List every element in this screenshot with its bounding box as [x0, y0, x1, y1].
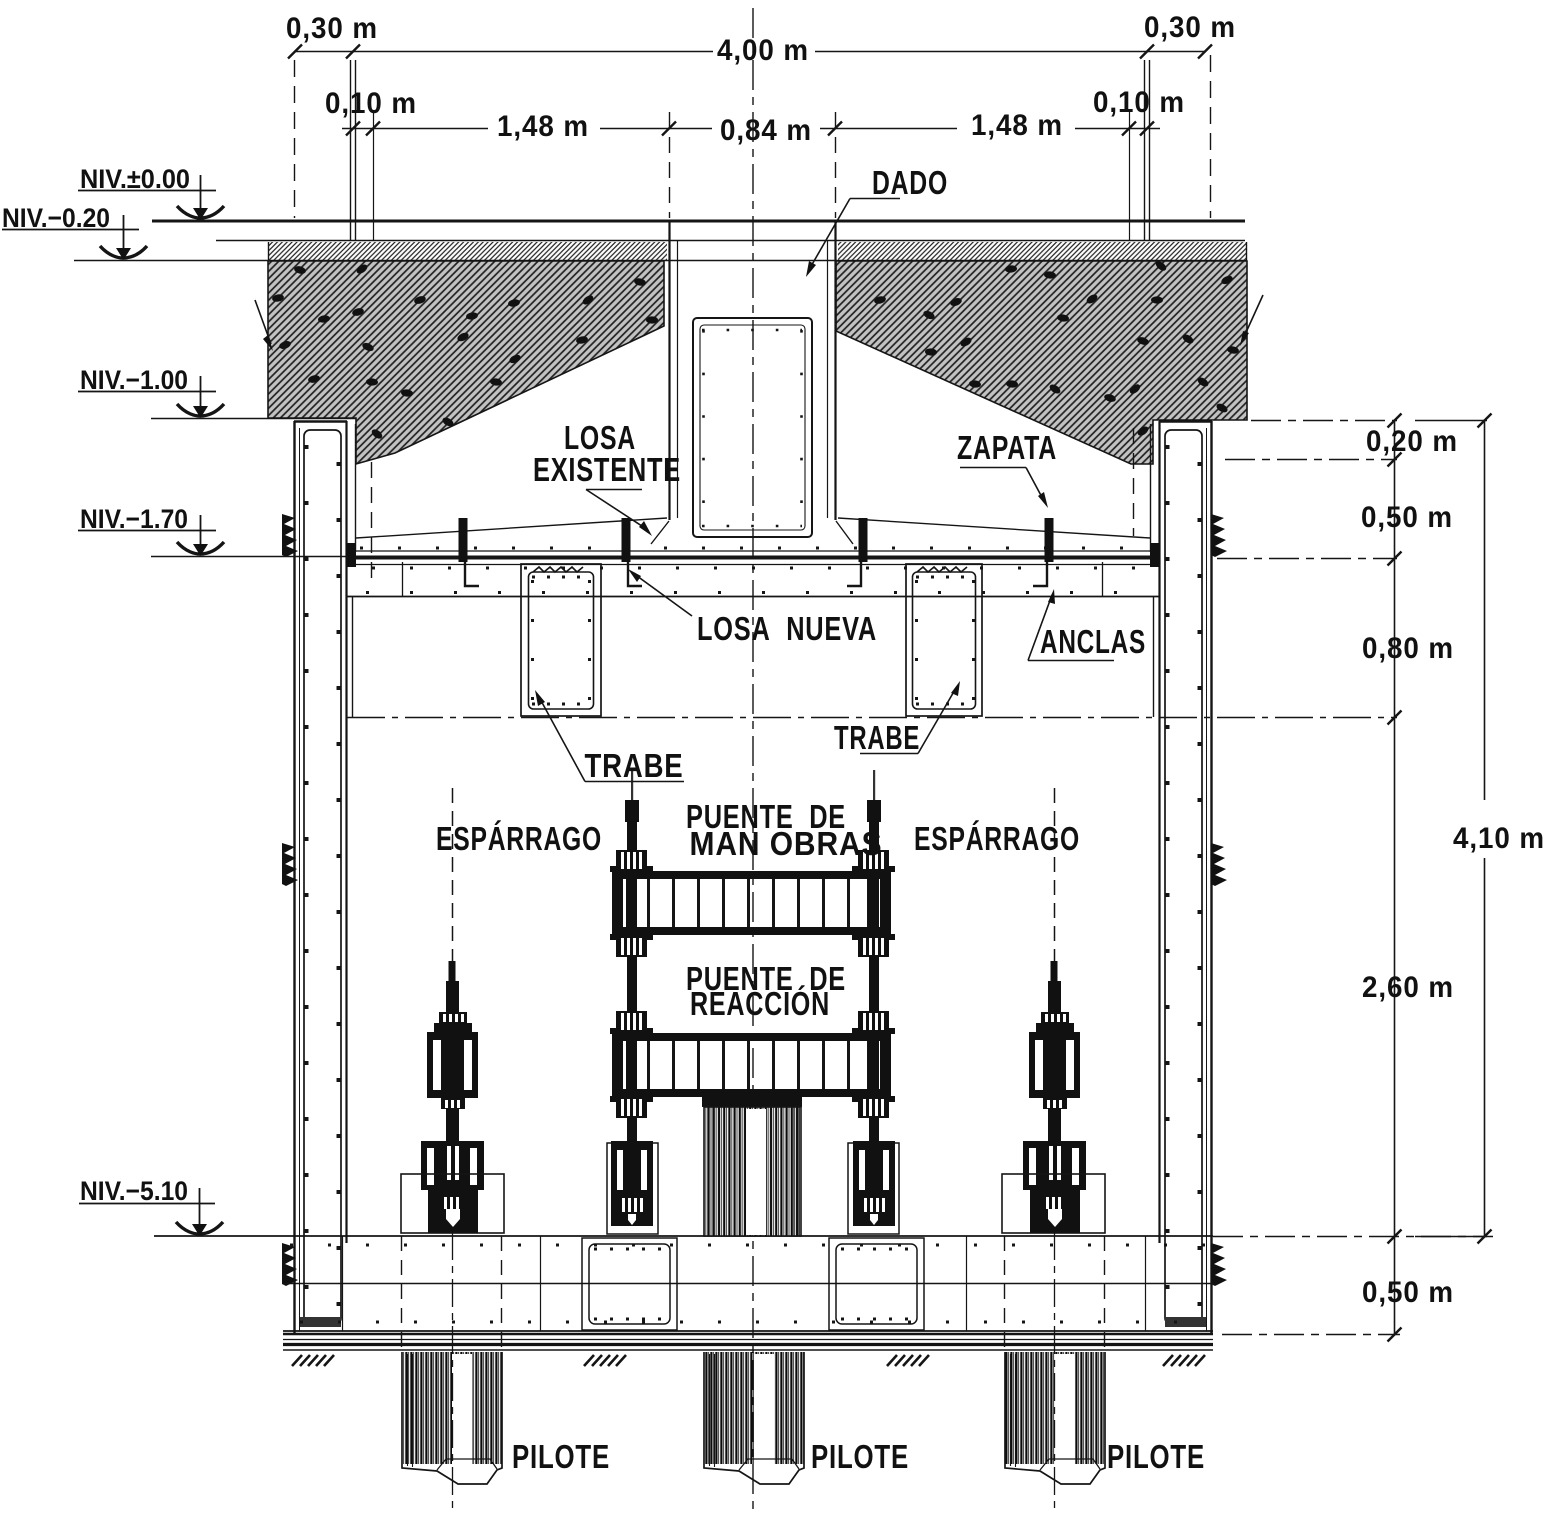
svg-text:LOSA NUEVA: LOSA NUEVA [697, 610, 877, 647]
svg-text:0,20 m: 0,20 m [1366, 425, 1458, 458]
svg-text:PILOTE: PILOTE [811, 1438, 909, 1475]
svg-text:0,10 m: 0,10 m [1093, 86, 1185, 119]
svg-text:0,30 m: 0,30 m [286, 12, 378, 45]
svg-text:ANCLAS: ANCLAS [1040, 623, 1146, 660]
svg-text:NIV.−1.70: NIV.−1.70 [80, 504, 188, 534]
svg-text:NIV.±0.00: NIV.±0.00 [80, 164, 190, 194]
svg-text:PILOTE: PILOTE [512, 1438, 610, 1475]
svg-text:0,50 m: 0,50 m [1362, 1276, 1454, 1309]
svg-text:0,80 m: 0,80 m [1362, 632, 1454, 665]
svg-text:NIV.−5.10: NIV.−5.10 [80, 1176, 188, 1206]
svg-text:NIV.−1.00: NIV.−1.00 [80, 365, 188, 395]
svg-text:0,30 m: 0,30 m [1144, 11, 1236, 44]
svg-text:1,48 m: 1,48 m [971, 109, 1063, 142]
svg-text:0,10 m: 0,10 m [325, 87, 417, 120]
svg-text:0,84 m: 0,84 m [720, 114, 812, 147]
svg-text:TRABE: TRABE [834, 719, 920, 756]
svg-text:4,10 m: 4,10 m [1453, 822, 1545, 855]
svg-text:ESPÁRRAGO: ESPÁRRAGO [914, 820, 1080, 857]
svg-text:4,00 m: 4,00 m [717, 34, 809, 67]
svg-text:REACCIÓN: REACCIÓN [690, 985, 830, 1022]
svg-text:2,60 m: 2,60 m [1362, 971, 1454, 1004]
svg-text:ZAPATA: ZAPATA [957, 429, 1057, 466]
svg-text:NIV.−0.20: NIV.−0.20 [2, 203, 110, 233]
svg-text:PILOTE: PILOTE [1107, 1438, 1205, 1475]
svg-text:1,48 m: 1,48 m [497, 110, 589, 143]
svg-text:0,50 m: 0,50 m [1361, 501, 1453, 534]
svg-text:ESPÁRRAGO: ESPÁRRAGO [436, 820, 602, 857]
svg-text:MAN OBRAS: MAN OBRAS [690, 825, 883, 862]
svg-text:EXISTENTE: EXISTENTE [533, 451, 681, 488]
svg-text:TRABE: TRABE [585, 747, 684, 784]
svg-text:DADO: DADO [872, 164, 948, 201]
